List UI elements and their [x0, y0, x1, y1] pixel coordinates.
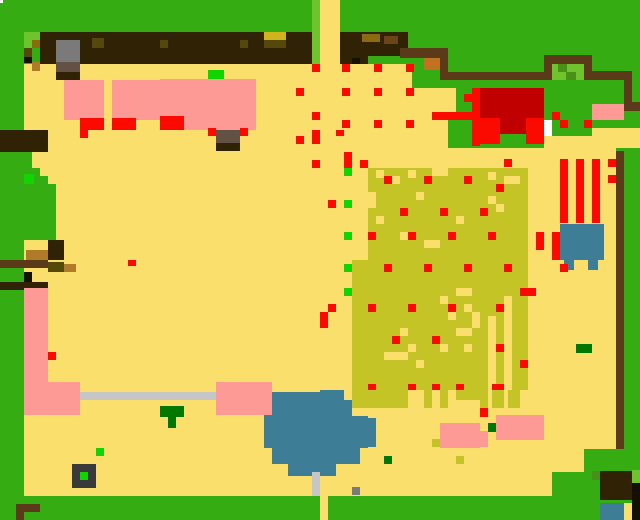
game-map-viewport	[0, 0, 640, 520]
farm-map-canvas[interactable]	[0, 0, 640, 520]
